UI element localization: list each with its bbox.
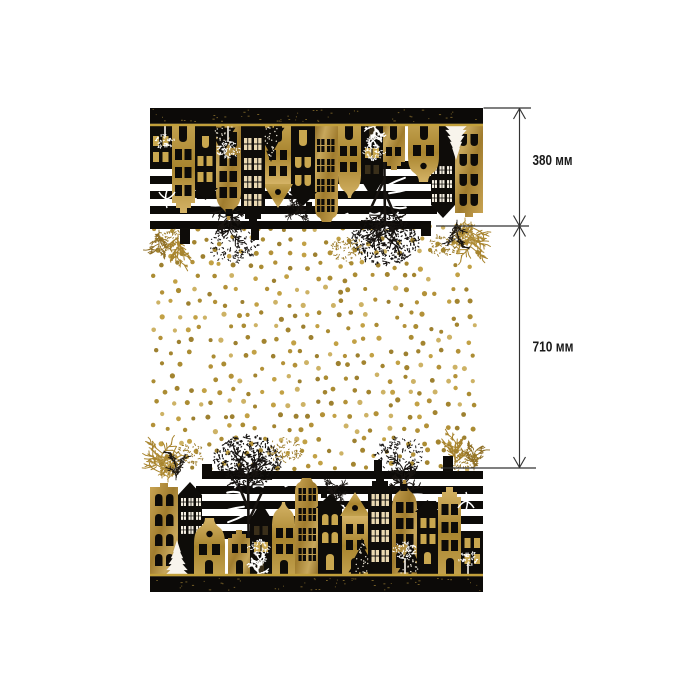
svg-text:380 мм: 380 мм	[533, 152, 573, 169]
svg-text:710 мм: 710 мм	[533, 339, 574, 356]
